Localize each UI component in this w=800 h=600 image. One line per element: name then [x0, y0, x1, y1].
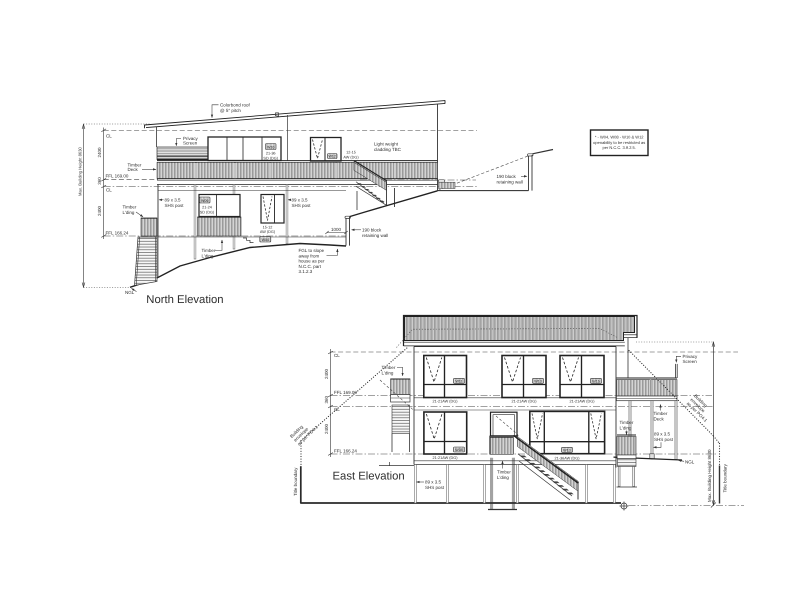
svg-text:21-21AW (DG): 21-21AW (DG): [433, 456, 459, 460]
svg-text:@ 5° pitch: @ 5° pitch: [220, 108, 241, 113]
svg-text:Light weight: Light weight: [374, 142, 399, 147]
svg-text:FGL to slope: FGL to slope: [299, 248, 325, 253]
svg-text:3.1.2.3: 3.1.2.3: [299, 269, 313, 274]
svg-text:Screen: Screen: [683, 359, 698, 364]
svg-text:AW (DG): AW (DG): [260, 230, 276, 234]
svg-text:W10: W10: [267, 145, 274, 149]
svg-text:2400: 2400: [324, 423, 329, 434]
svg-text:SD (DG): SD (DG): [263, 156, 278, 160]
svg-text:Title boundary: Title boundary: [723, 463, 728, 492]
svg-text:Max. Building Height 8630: Max. Building Height 8630: [707, 449, 712, 502]
svg-text:per N.C.C. 3.9.2.5.: per N.C.C. 3.9.2.5.: [603, 145, 636, 150]
svg-text:Timber: Timber: [202, 248, 216, 253]
svg-text:W15: W15: [592, 379, 599, 383]
svg-text:W08: W08: [455, 448, 462, 452]
svg-text:L'ding: L'ding: [382, 370, 394, 375]
svg-text:SHS post: SHS post: [654, 437, 674, 442]
svg-text:21-24: 21-24: [202, 206, 212, 210]
svg-text:190 block: 190 block: [497, 174, 517, 179]
svg-text:SHS post: SHS post: [292, 203, 312, 208]
svg-text:Timber: Timber: [654, 411, 668, 416]
svg-text:CL: CL: [334, 407, 340, 412]
svg-text:retaining wall: retaining wall: [362, 233, 388, 238]
svg-text:21-21AW (DG): 21-21AW (DG): [433, 399, 459, 403]
svg-text:2400: 2400: [324, 368, 329, 379]
svg-text:360: 360: [97, 177, 102, 185]
svg-text:89 x 3.5: 89 x 3.5: [165, 198, 182, 203]
svg-text:360: 360: [324, 395, 329, 403]
svg-text:house as per: house as per: [299, 259, 326, 264]
svg-text:W09: W09: [201, 199, 208, 203]
svg-text:openability to be restricted a: openability to be restricted as: [593, 140, 645, 145]
svg-text:Timber: Timber: [123, 205, 137, 210]
svg-text:21-36: 21-36: [266, 152, 276, 156]
svg-text:W12: W12: [329, 155, 336, 159]
svg-text:CL: CL: [106, 133, 112, 138]
svg-text:Deck: Deck: [654, 416, 665, 421]
svg-text:SHS post: SHS post: [165, 203, 185, 208]
svg-text:190 block: 190 block: [362, 228, 382, 233]
svg-text:89 x 3.5: 89 x 3.5: [292, 198, 309, 203]
svg-text:AW (DG): AW (DG): [343, 155, 359, 159]
svg-text:Timber: Timber: [497, 470, 511, 475]
svg-text:21-36AW (DG): 21-36AW (DG): [555, 457, 581, 461]
svg-text:L'ding: L'ding: [123, 210, 135, 215]
svg-text:21-21AW (DG): 21-21AW (DG): [512, 399, 538, 403]
svg-text:W13: W13: [563, 448, 570, 452]
svg-text:NGL: NGL: [125, 290, 135, 295]
svg-text:Title boundary: Title boundary: [293, 467, 298, 496]
svg-text:CL: CL: [334, 353, 340, 358]
svg-text:NGL: NGL: [685, 460, 695, 465]
svg-text:1000: 1000: [331, 227, 342, 232]
svg-text:* - W04, W08 - W10 & W12: * - W04, W08 - W10 & W12: [595, 135, 644, 140]
svg-text:12-15: 12-15: [346, 151, 356, 155]
svg-text:2400: 2400: [97, 147, 102, 158]
svg-text:East Elevation: East Elevation: [333, 471, 405, 483]
svg-text:SHS post: SHS post: [425, 485, 445, 490]
svg-text:away from: away from: [299, 253, 320, 258]
svg-text:Timber: Timber: [620, 420, 634, 425]
svg-text:Max. Building Height 8630: Max. Building Height 8630: [78, 146, 83, 196]
svg-text:SD (DG): SD (DG): [200, 210, 215, 214]
svg-text:89 x 3.5: 89 x 3.5: [425, 480, 442, 485]
svg-text:21-21AW (DG): 21-21AW (DG): [570, 399, 596, 403]
svg-text:Colorbond roof: Colorbond roof: [220, 103, 251, 108]
svg-text:89 x 3.5: 89 x 3.5: [654, 432, 671, 437]
svg-text:FFL 169.00: FFL 169.00: [106, 173, 129, 178]
svg-text:2400: 2400: [97, 205, 102, 216]
svg-text:Timber: Timber: [382, 365, 396, 370]
svg-text:North Elevation: North Elevation: [146, 294, 223, 306]
svg-text:N.C.C. part: N.C.C. part: [299, 264, 322, 269]
svg-text:cladding TBC: cladding TBC: [374, 147, 402, 152]
svg-text:FFL 166.24: FFL 166.24: [334, 449, 357, 454]
svg-text:L'ding: L'ding: [497, 475, 509, 480]
svg-text:W04: W04: [262, 238, 269, 242]
svg-text:W13: W13: [534, 379, 541, 383]
svg-text:Screen: Screen: [183, 141, 198, 146]
svg-text:L'ding: L'ding: [620, 425, 632, 430]
svg-text:retaining wall: retaining wall: [497, 179, 523, 184]
svg-text:Privacy: Privacy: [683, 354, 699, 359]
svg-text:15-12: 15-12: [263, 225, 273, 229]
svg-text:FFL 166.24: FFL 166.24: [106, 231, 129, 236]
svg-text:Deck: Deck: [128, 167, 139, 172]
svg-text:W11: W11: [455, 379, 462, 383]
svg-text:CL: CL: [106, 188, 112, 193]
